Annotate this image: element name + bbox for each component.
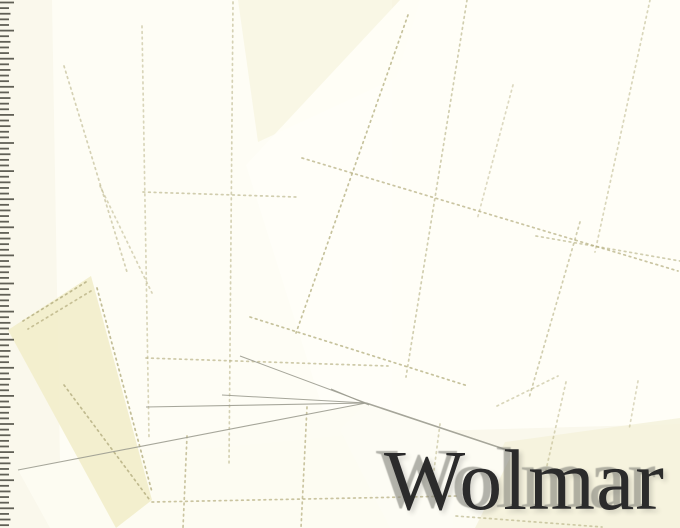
watermark-text: Wolmar [384,437,665,523]
stamp-sheets-scan: Wolmar [0,0,680,528]
ruler [0,0,20,528]
